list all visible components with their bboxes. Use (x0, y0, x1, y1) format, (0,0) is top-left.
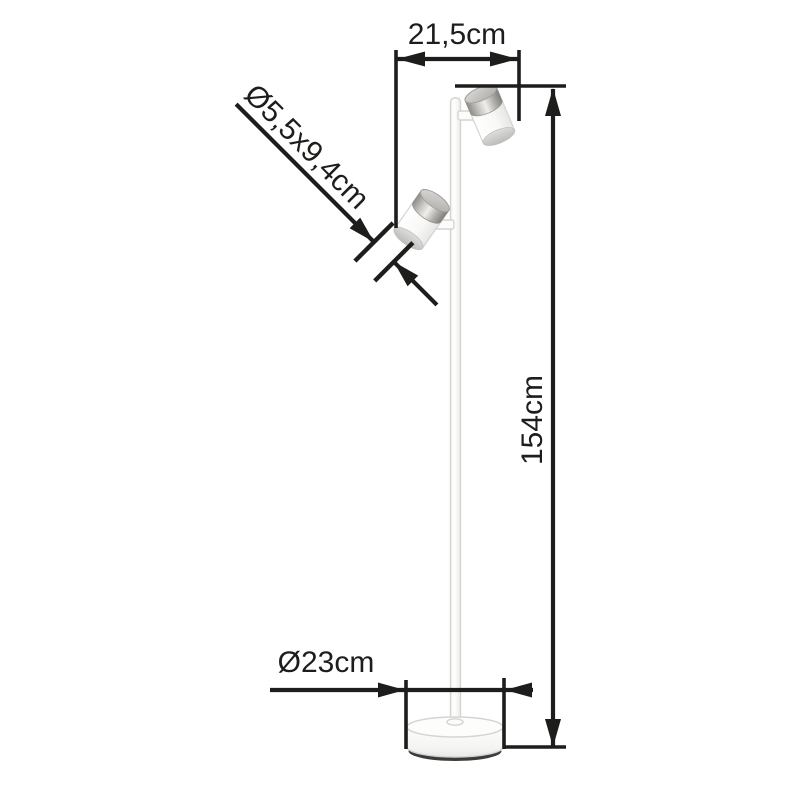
pole-base-collar (447, 719, 463, 725)
lamp-drawing (391, 81, 517, 761)
arrowhead-right-icon (490, 52, 518, 67)
dimension-label-base-diameter: Ø23cm (278, 646, 375, 679)
arrowhead-inward-left-icon (378, 683, 405, 698)
lamp-base (407, 717, 503, 761)
floor-lamp-dimension-diagram: 21,5cm Ø5,5x9,4cm 154cm Ø23cm (0, 0, 800, 800)
arrowhead-down-icon (545, 719, 561, 747)
dimension-label-head-size: Ø5,5x9,4cm (238, 78, 376, 216)
dimension-height: 154cm (455, 86, 566, 747)
leader-line-lower (394, 262, 437, 305)
dimension-label-width-top: 21,5cm (408, 18, 506, 51)
arrowhead-inward-right-icon (505, 683, 532, 698)
spotlight-head-upper (463, 81, 517, 149)
arrowhead-left-icon (397, 52, 425, 67)
dimension-label-height: 154cm (516, 375, 549, 465)
lamp-pole (451, 98, 461, 730)
arrowhead-up-icon (545, 88, 561, 116)
